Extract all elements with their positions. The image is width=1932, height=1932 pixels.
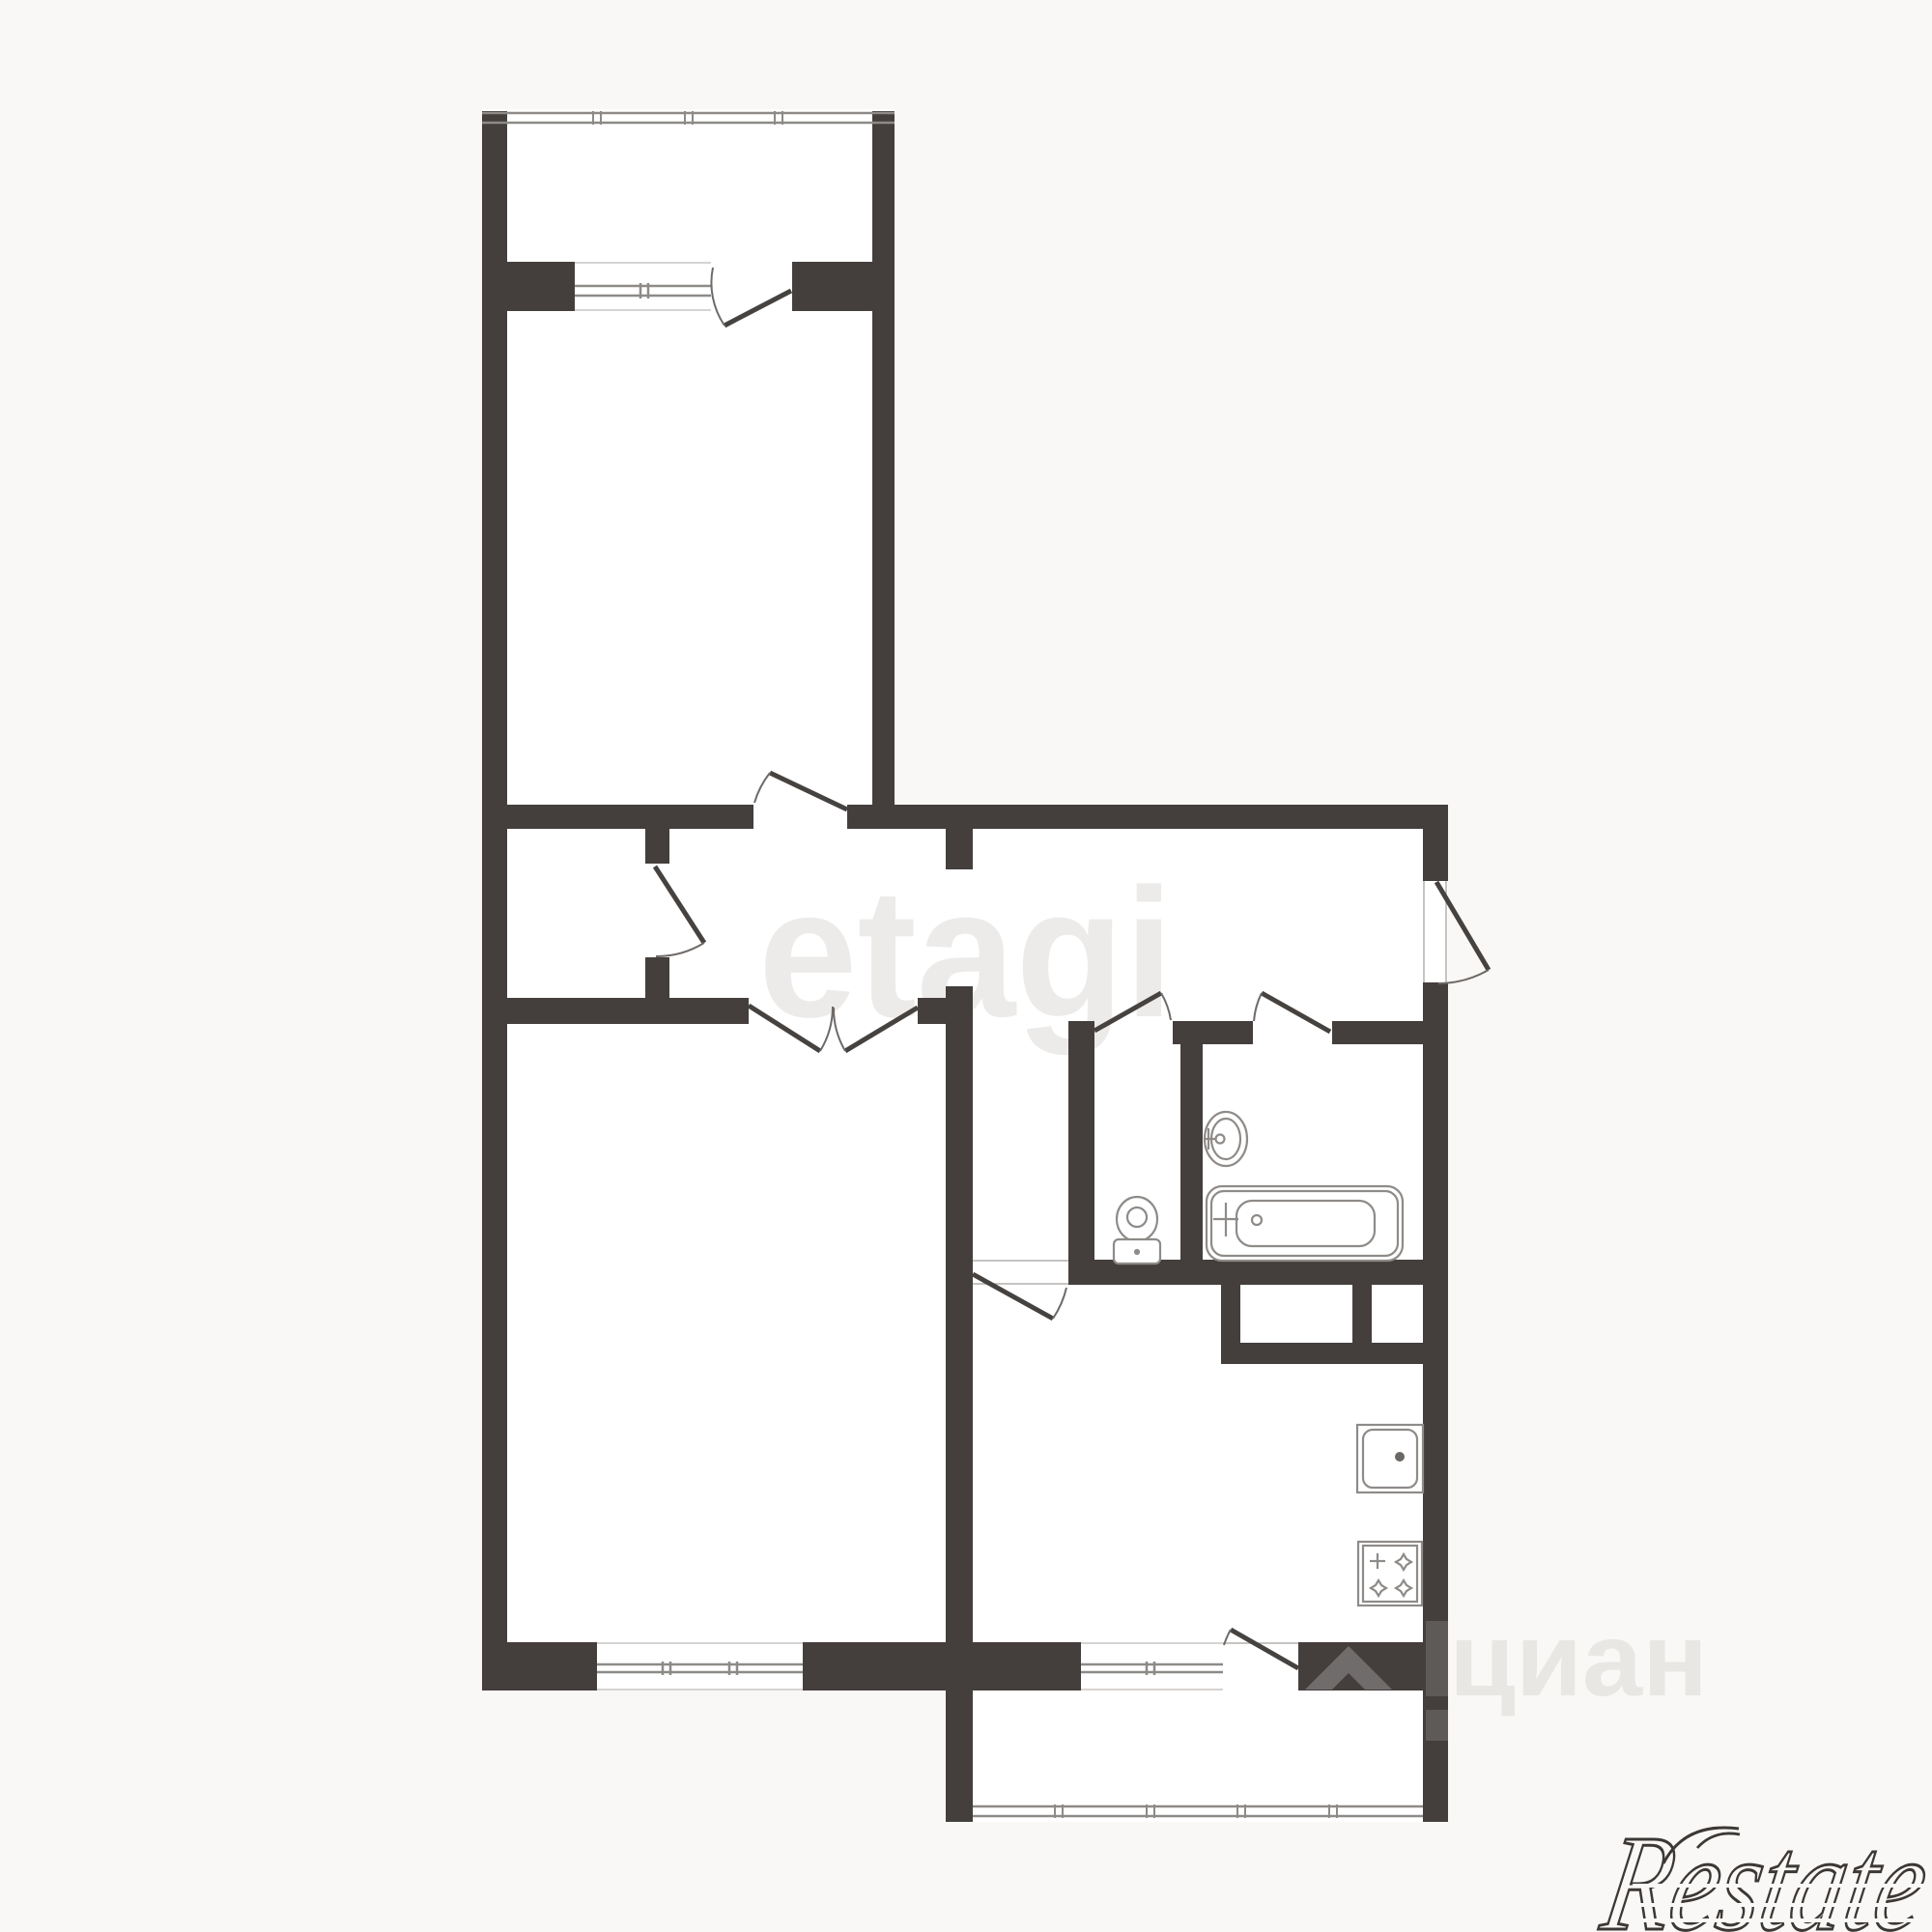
svg-text:Restate: Restate: [1593, 1806, 1932, 1932]
svg-text:циан: циан: [1449, 1601, 1708, 1718]
